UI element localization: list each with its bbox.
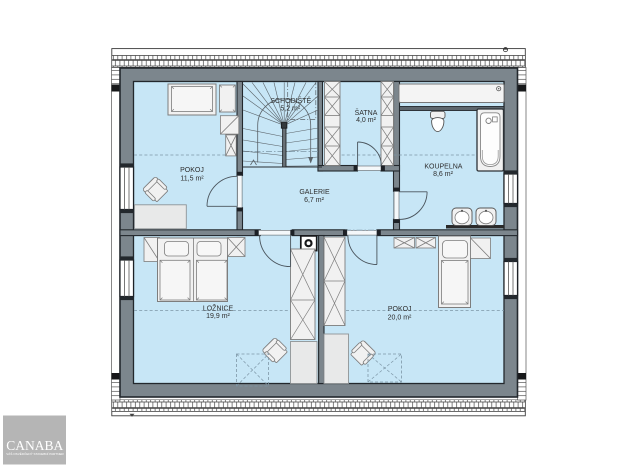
svg-text:8,6 m²: 8,6 m²	[433, 171, 454, 178]
svg-text:POKOJ: POKOJ	[180, 167, 204, 174]
svg-text:KOUPELNA: KOUPELNA	[424, 163, 462, 170]
svg-text:20,0 m²: 20,0 m²	[388, 315, 412, 322]
svg-text:19,9 m²: 19,9 m²	[206, 313, 230, 320]
svg-text:LOŽNICE: LOŽNICE	[203, 303, 234, 312]
svg-text:GALERIE: GALERIE	[299, 189, 330, 196]
svg-text:6,7 m²: 6,7 m²	[304, 197, 325, 204]
svg-text:4,0 m²: 4,0 m²	[356, 117, 377, 124]
svg-text:POKOJ: POKOJ	[388, 306, 412, 313]
svg-text:VÁŠ OSVĚDČENÝ STAVEBNÍ PARTNER: VÁŠ OSVĚDČENÝ STAVEBNÍ PARTNER	[6, 451, 64, 456]
svg-text:11,5 m²: 11,5 m²	[180, 176, 204, 183]
svg-text:5,2 m²: 5,2 m²	[280, 106, 301, 113]
svg-text:CANABA: CANABA	[6, 438, 63, 453]
svg-text:SCHODIŠTĚ: SCHODIŠTĚ	[270, 96, 311, 105]
svg-text:ŠATNA: ŠATNA	[355, 108, 378, 117]
